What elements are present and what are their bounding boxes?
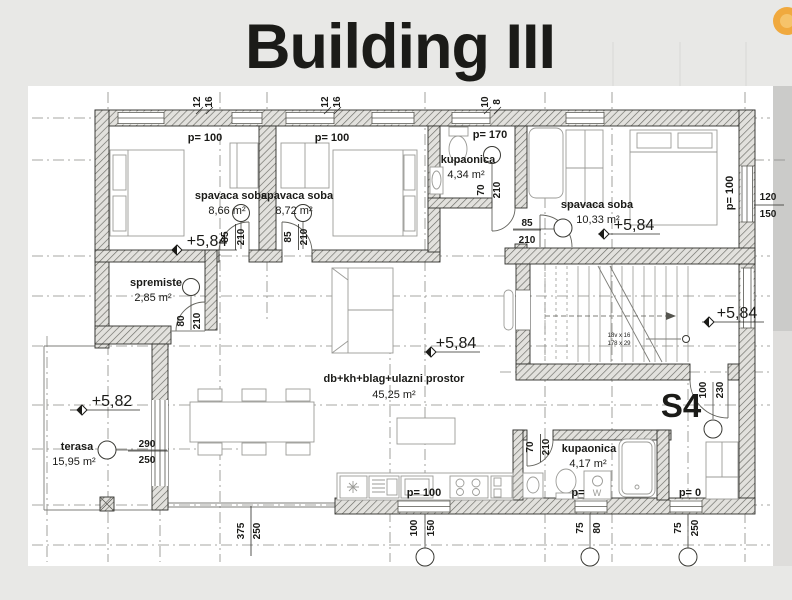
wall-bath-bottom <box>428 198 492 208</box>
bubble-kitchen-window <box>416 548 434 566</box>
dim-right-120: 120 <box>760 192 777 203</box>
wall-step <box>95 326 171 344</box>
entry-door-leaf <box>504 290 513 330</box>
wall-bath2-right <box>657 430 669 500</box>
kitchen-island <box>397 418 455 444</box>
dim-s4-door-w: 100 <box>698 381 709 398</box>
wall-top <box>95 110 755 126</box>
dim-tick-16b: 16 <box>332 96 343 108</box>
window-top-3 <box>286 112 334 125</box>
entry-door-opening <box>516 290 530 330</box>
wall-beds-bottom-c <box>312 250 440 262</box>
room-area-storage: 2,85 m² <box>134 292 172 304</box>
dim-tick-16a: 16 <box>204 96 215 108</box>
dim-storage-door-h: 210 <box>192 312 203 329</box>
stove <box>450 476 488 498</box>
dim-s4-win-h: 250 <box>690 519 701 536</box>
dim-tick-12b: 12 <box>320 96 331 108</box>
bed-2 <box>333 150 417 236</box>
bubble-bath2-window <box>581 548 599 566</box>
room-name-bath-bottom: kupaonica <box>562 443 617 455</box>
dim-bath-top-door-w: 70 <box>476 184 487 196</box>
closet-bed3 <box>529 128 563 198</box>
room-area-terrace: 15,95 m² <box>52 456 96 468</box>
parapet-right: p= 100 <box>724 176 736 211</box>
dim-terrace-250: 250 <box>139 455 156 466</box>
room-area-bedroom2: 8,72 m² <box>275 205 313 217</box>
terrace-column <box>100 497 114 511</box>
parapet-kitchen: p= 100 <box>407 487 442 499</box>
wall-left <box>95 110 109 348</box>
sink-bath-bottom <box>523 473 543 498</box>
window-top-2 <box>232 112 262 125</box>
room-name-terrace: terasa <box>61 441 94 453</box>
dim-terrace-290: 290 <box>139 439 156 450</box>
washer-label: W <box>593 488 602 498</box>
parapet-bedroom2: p= 100 <box>315 132 350 144</box>
parapet-bedroom1: p= 100 <box>188 132 223 144</box>
parapet-bath-bottom: p= <box>571 487 584 499</box>
kitchen-sink <box>491 476 512 498</box>
room-area-bath-bottom: 4,17 m² <box>569 458 607 470</box>
window-top-4 <box>372 112 414 125</box>
wall-storage-right <box>205 250 217 330</box>
dim-storage-door-w: 80 <box>176 315 187 327</box>
dim-bed1-door-h: 210 <box>236 228 247 245</box>
room-area-living: 45,25 m² <box>372 389 416 401</box>
window-top-1 <box>118 112 164 125</box>
room-name-storage: spremiste <box>130 277 182 289</box>
dim-bed1-door-w: 85 <box>220 231 231 243</box>
dim-bath-top-door-h: 210 <box>492 181 503 198</box>
room-name-living: db+kh+blag+ulazni prostor <box>324 373 466 385</box>
wall-stair-stub <box>728 364 739 380</box>
dim-250b: 250 <box>252 522 263 539</box>
stair-note-2: 178 x 29 <box>607 341 631 347</box>
window-right <box>741 166 755 222</box>
wall-bath-right <box>515 126 527 208</box>
bubble-terrace <box>98 441 116 459</box>
room-area-bedroom1: 8,66 m² <box>208 205 246 217</box>
right-margin-strip-lower <box>773 331 792 566</box>
window-s4 <box>670 500 702 514</box>
page-title: Building III <box>245 12 555 82</box>
dim-tick-12a: 12 <box>192 96 203 108</box>
closet-s4 <box>706 442 738 499</box>
window-kitchen <box>398 500 450 514</box>
sink-bath-top <box>430 167 443 194</box>
dim-tick-10: 10 <box>480 96 491 108</box>
dim-tick-8: 8 <box>492 99 503 105</box>
dim-kitchen-win-w: 100 <box>409 519 420 536</box>
unit-label-s4: S4 <box>661 387 702 424</box>
dim-kitchen-win-h: 150 <box>426 519 437 536</box>
shower <box>619 439 655 497</box>
bubble-s4-window <box>679 548 697 566</box>
dim-bed3-door-w: 85 <box>521 218 533 229</box>
bed-1 <box>110 150 184 236</box>
wall-bath2-top-b <box>553 430 671 440</box>
dim-bed2-door-h: 210 <box>299 228 310 245</box>
nightstand-bed1 <box>230 143 258 188</box>
window-top-6 <box>566 112 604 125</box>
wall-beds-bottom-a <box>95 250 219 262</box>
sofa <box>332 268 393 353</box>
wall-beds-bottom-b <box>249 250 282 262</box>
parapet-s4: p= 0 <box>679 487 701 499</box>
room-name-bedroom2: spavaca soba <box>261 190 334 202</box>
dim-bath2-door-h: 210 <box>541 438 552 455</box>
level-bedroom3: +5,84 <box>614 217 655 234</box>
shelf-bed3 <box>566 130 603 205</box>
bubble-bedroom3 <box>554 219 572 237</box>
bubble-storage <box>183 279 200 296</box>
dim-bed2-door-w: 85 <box>283 231 294 243</box>
bubble-s4-door <box>704 420 722 438</box>
dining-set <box>190 389 314 455</box>
level-living: +5,84 <box>436 335 477 352</box>
stair-note-1: 18v x 16 <box>608 333 631 339</box>
room-area-bath-top: 4,34 m² <box>447 169 485 181</box>
bed-3 <box>630 130 717 225</box>
level-stairs: +5,84 <box>717 305 758 322</box>
dim-s4-win-w: 75 <box>673 522 684 534</box>
dim-bath2-win-w: 75 <box>575 522 586 534</box>
dim-375: 375 <box>236 522 247 539</box>
washing-machine: W <box>584 471 611 499</box>
floor-plan-slide: Building III <box>0 0 792 600</box>
dim-bath2-win-h: 80 <box>592 522 603 534</box>
room-name-bedroom1: spavaca soba <box>195 190 268 202</box>
room-name-bedroom3: spavaca soba <box>561 199 634 211</box>
level-terrace: +5,82 <box>92 393 133 410</box>
room-name-bath-top: kupaonica <box>441 154 496 166</box>
dim-right-150: 150 <box>760 209 777 220</box>
dim-bath2-door-w: 70 <box>525 441 536 453</box>
wall-stair-bottom <box>516 364 690 380</box>
wall-stair-top <box>505 248 755 264</box>
wall-bed-divider <box>259 126 276 252</box>
dim-bed3-door-h: 210 <box>519 235 536 246</box>
dim-s4-door-h: 230 <box>715 381 726 398</box>
window-bath2 <box>575 500 607 514</box>
wall-bath2-left <box>513 430 523 500</box>
stair-ref-bubble <box>683 336 690 343</box>
parapet-bath-top: p= 170 <box>473 129 508 141</box>
